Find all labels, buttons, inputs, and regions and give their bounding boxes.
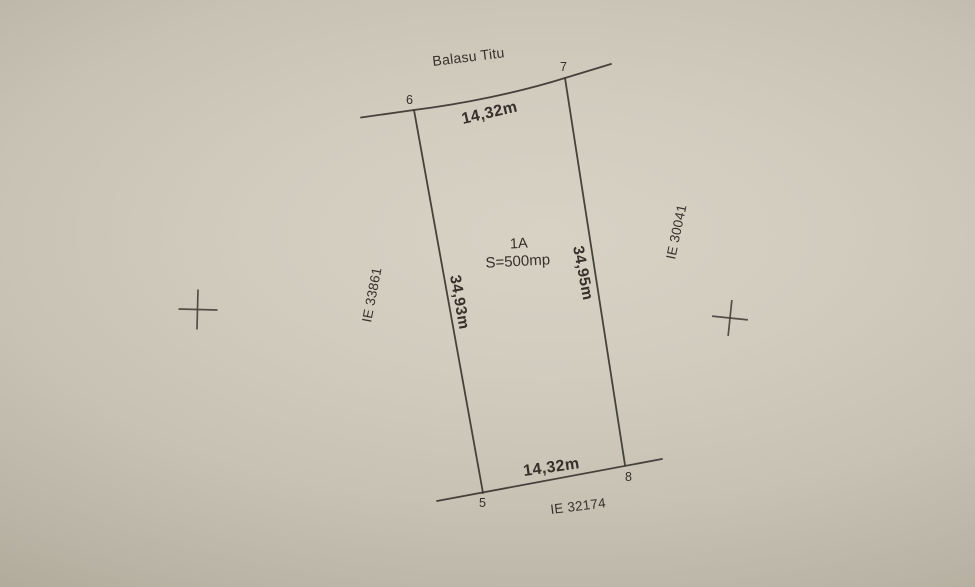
parcel-id-label: 1A [510,236,529,253]
cadastral-sketch: Balasu Titu 6 7 5 8 14,32m 14,32m 34,93m… [0,0,975,587]
left-boundary-line [414,110,483,493]
neighbor-ie-right: IE 30041 [663,203,689,261]
neighbor-ie-left: IE 33861 [359,266,384,323]
corner-label-7: 7 [560,60,567,74]
right-cross-mark [710,298,750,338]
dimension-top: 14,32m [460,99,519,128]
owner-name-label: Balasu Titu [431,44,505,69]
neighbor-ie-bottom: IE 32174 [550,495,607,517]
dimension-left: 34,93m [446,274,472,331]
corner-label-8: 8 [625,470,632,484]
corner-label-6: 6 [406,93,413,107]
corner-label-5: 5 [479,496,486,510]
left-cross-mark [178,289,218,330]
scanned-cadastral-plan: Balasu Titu 6 7 5 8 14,32m 14,32m 34,93m… [0,0,975,587]
parcel-area-label: S=500mp [485,251,550,271]
